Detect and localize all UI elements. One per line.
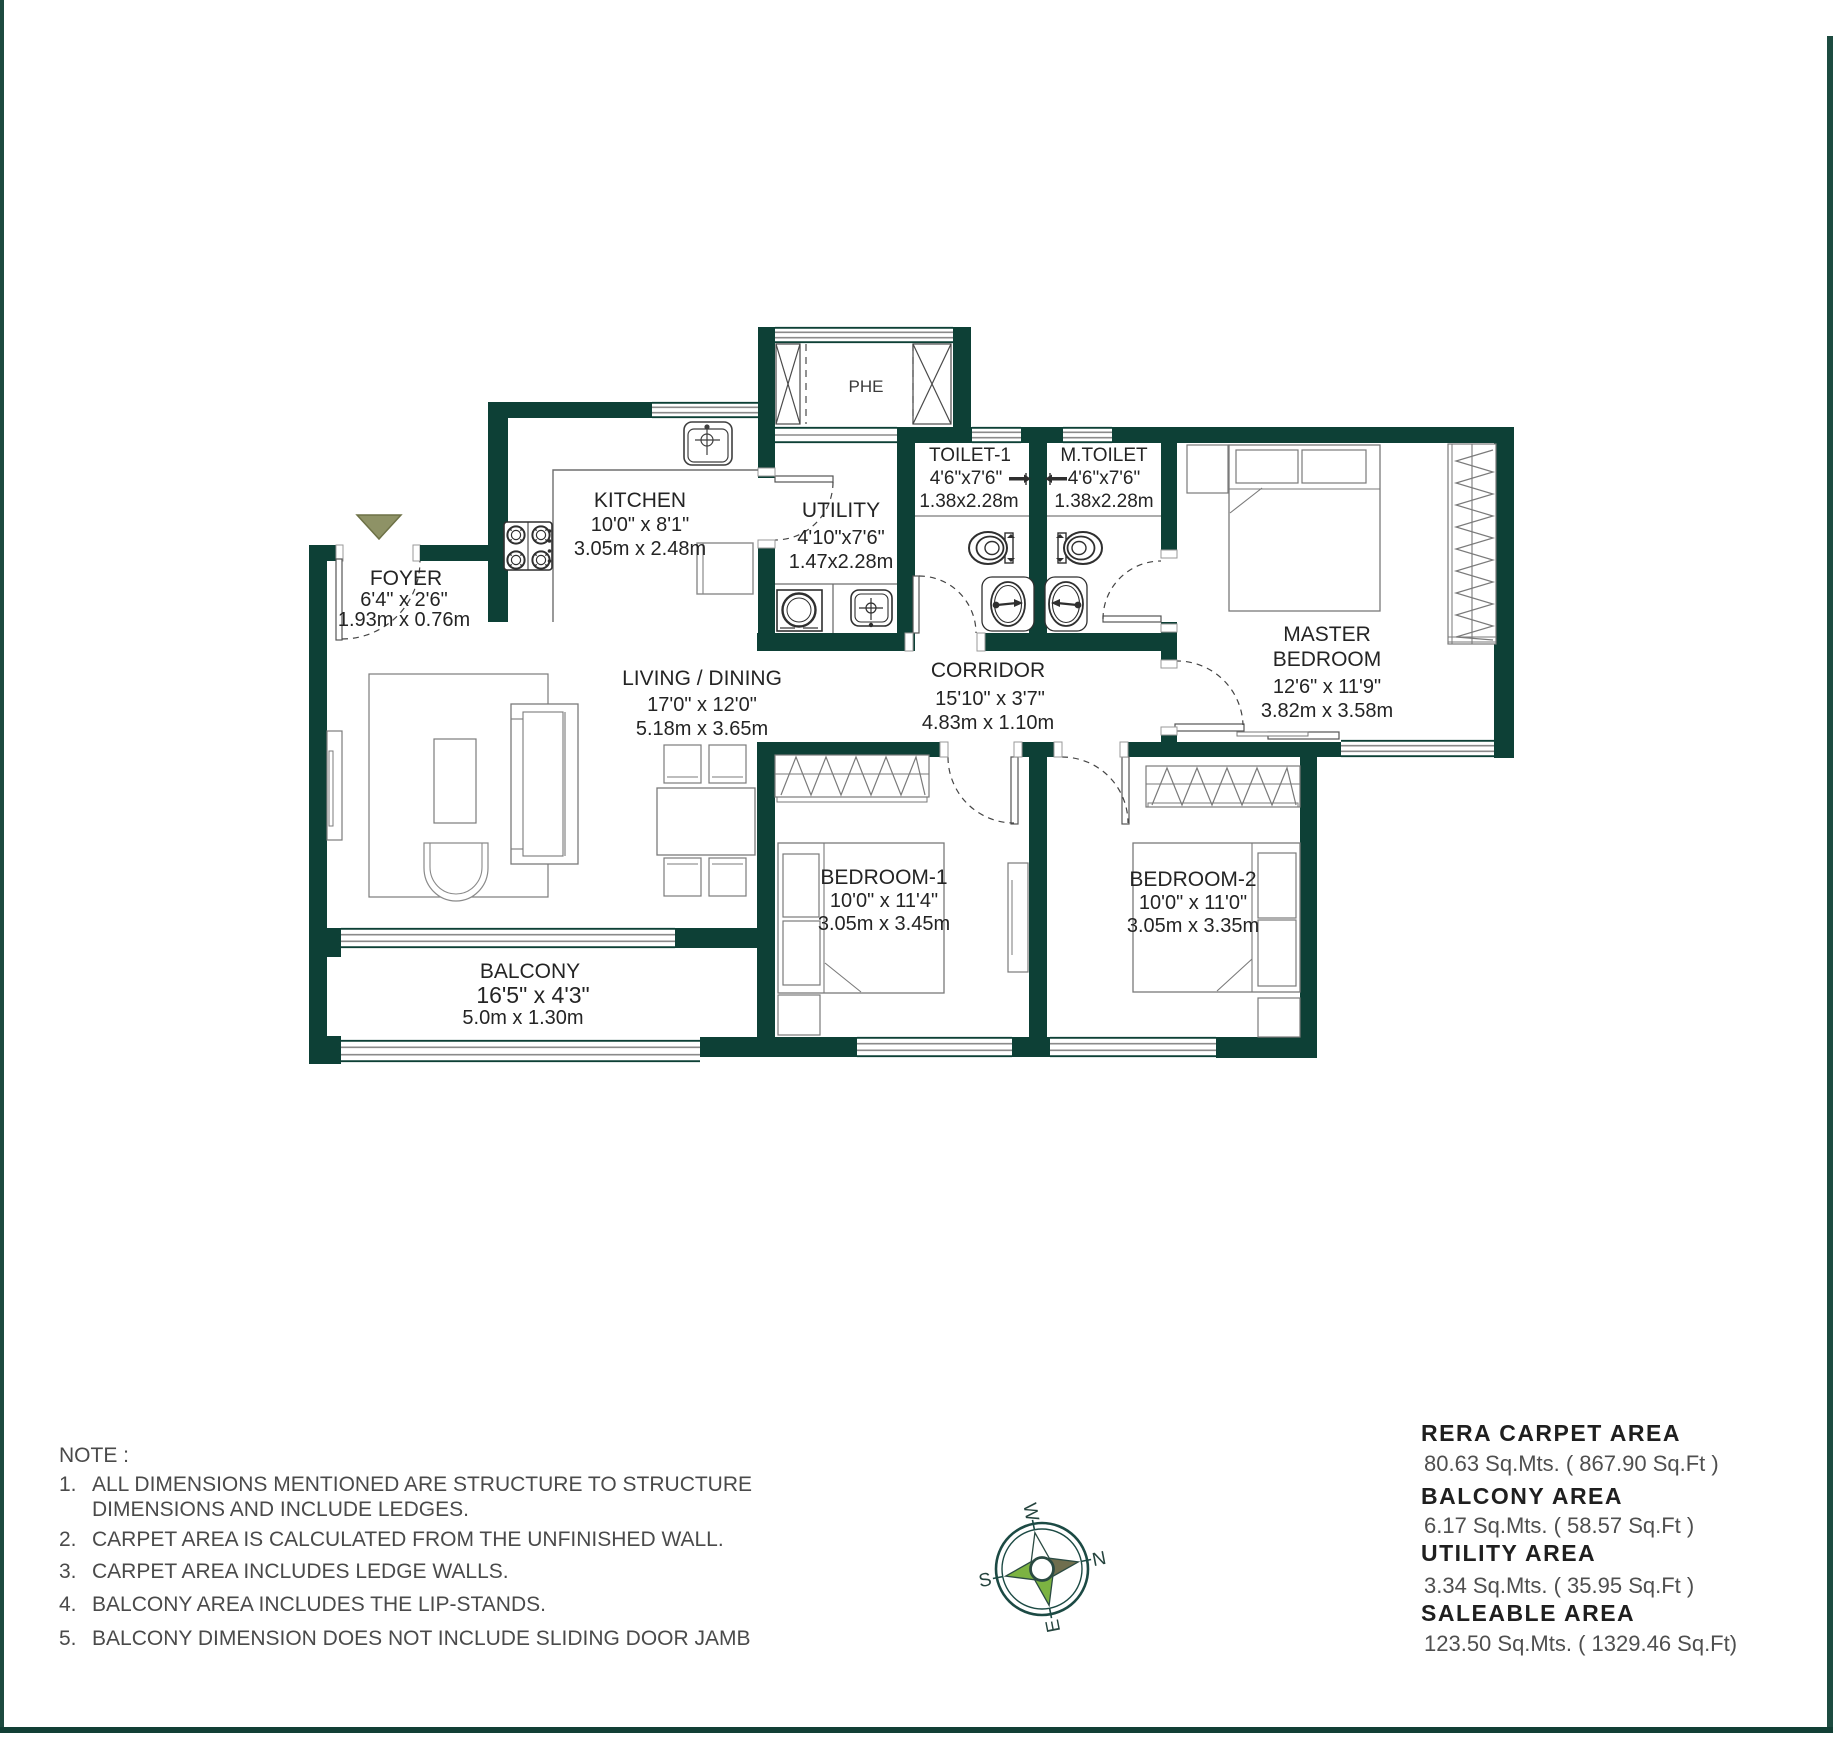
svg-text:BALCONY DIMENSION DOES NOT INC: BALCONY DIMENSION DOES NOT INCLUDE SLIDI… — [92, 1627, 751, 1650]
svg-text:1.: 1. — [59, 1473, 77, 1496]
svg-text:4'6"x7'6": 4'6"x7'6" — [1068, 468, 1141, 489]
svg-text:BEDROOM-2: BEDROOM-2 — [1129, 868, 1256, 891]
svg-text:ALL DIMENSIONS MENTIONED ARE S: ALL DIMENSIONS MENTIONED ARE STRUCTURE T… — [92, 1473, 752, 1496]
svg-text:80.63 Sq.Mts. ( 867.90 Sq.Ft ): 80.63 Sq.Mts. ( 867.90 Sq.Ft ) — [1424, 1451, 1719, 1476]
svg-text:DIMENSIONS AND INCLUDE LEDGES.: DIMENSIONS AND INCLUDE LEDGES. — [92, 1498, 469, 1521]
svg-text:1.93m x 0.76m: 1.93m x 0.76m — [338, 609, 470, 631]
svg-text:3.05m x 3.35m: 3.05m x 3.35m — [1127, 915, 1259, 937]
svg-text:FOYER: FOYER — [370, 567, 442, 590]
svg-text:BALCONY AREA: BALCONY AREA — [1421, 1483, 1623, 1509]
svg-text:CARPET AREA INCLUDES LEDGE WAL: CARPET AREA INCLUDES LEDGE WALLS. — [92, 1560, 509, 1583]
svg-text:TOILET-1: TOILET-1 — [929, 445, 1011, 466]
svg-text:4.: 4. — [59, 1593, 77, 1616]
svg-text:6'4" x 2'6": 6'4" x 2'6" — [360, 589, 447, 611]
svg-text:4'6"x7'6": 4'6"x7'6" — [930, 468, 1003, 489]
svg-text:BEDROOM: BEDROOM — [1273, 648, 1382, 671]
svg-text:UTILITY: UTILITY — [802, 499, 880, 522]
svg-text:10'0" x 11'4": 10'0" x 11'4" — [830, 890, 938, 912]
svg-text:16'5" x 4'3": 16'5" x 4'3" — [476, 982, 589, 1008]
svg-text:KITCHEN: KITCHEN — [594, 489, 686, 512]
svg-text:15'10" x 3'7": 15'10" x 3'7" — [935, 688, 1045, 710]
svg-text:3.82m x 3.58m: 3.82m x 3.58m — [1261, 700, 1393, 722]
svg-text:5.: 5. — [59, 1627, 77, 1650]
svg-text:10'0" x 8'1": 10'0" x 8'1" — [591, 514, 690, 536]
svg-text:5.0m x 1.30m: 5.0m x 1.30m — [462, 1007, 583, 1029]
svg-text:SALEABLE AREA: SALEABLE AREA — [1421, 1600, 1635, 1626]
svg-text:6.17 Sq.Mts. ( 58.57 Sq.Ft ): 6.17 Sq.Mts. ( 58.57 Sq.Ft ) — [1424, 1513, 1694, 1538]
svg-text:CORRIDOR: CORRIDOR — [931, 659, 1045, 682]
svg-text:3.05m x 2.48m: 3.05m x 2.48m — [574, 538, 706, 560]
svg-text:4.83m x 1.10m: 4.83m x 1.10m — [922, 712, 1054, 734]
svg-text:M.TOILET: M.TOILET — [1060, 445, 1148, 466]
svg-text:1.38x2.28m: 1.38x2.28m — [919, 491, 1018, 512]
svg-text:1.38x2.28m: 1.38x2.28m — [1054, 491, 1153, 512]
svg-text:CARPET AREA IS CALCULATED FROM: CARPET AREA IS CALCULATED FROM THE UNFIN… — [92, 1528, 724, 1551]
svg-text:5.18m x 3.65m: 5.18m x 3.65m — [636, 718, 768, 740]
svg-text:LIVING / DINING: LIVING / DINING — [622, 667, 782, 690]
svg-text:123.50 Sq.Mts. ( 1329.46 Sq.Ft: 123.50 Sq.Mts. ( 1329.46 Sq.Ft) — [1424, 1631, 1737, 1656]
svg-text:1.47x2.28m: 1.47x2.28m — [789, 551, 894, 573]
svg-text:10'0" x 11'0": 10'0" x 11'0" — [1139, 892, 1247, 914]
svg-text:BALCONY: BALCONY — [480, 960, 580, 983]
svg-text:NOTE :: NOTE : — [59, 1444, 129, 1467]
svg-text:2.: 2. — [59, 1528, 77, 1551]
svg-text:MASTER: MASTER — [1283, 623, 1371, 646]
svg-text:17'0" x 12'0": 17'0" x 12'0" — [647, 694, 757, 716]
svg-text:PHE: PHE — [849, 377, 884, 396]
svg-text:RERA CARPET AREA: RERA CARPET AREA — [1421, 1420, 1681, 1446]
svg-text:12'6" x 11'9": 12'6" x 11'9" — [1273, 676, 1381, 698]
svg-text:3.: 3. — [59, 1560, 77, 1583]
svg-text:3.34 Sq.Mts. ( 35.95 Sq.Ft ): 3.34 Sq.Mts. ( 35.95 Sq.Ft ) — [1424, 1573, 1694, 1598]
svg-text:BEDROOM-1: BEDROOM-1 — [820, 866, 947, 889]
svg-text:4'10"x7'6": 4'10"x7'6" — [797, 527, 884, 549]
svg-text:UTILITY AREA: UTILITY AREA — [1421, 1540, 1596, 1566]
svg-text:3.05m x 3.45m: 3.05m x 3.45m — [818, 913, 950, 935]
svg-text:BALCONY AREA INCLUDES THE LIP-: BALCONY AREA INCLUDES THE LIP-STANDS. — [92, 1593, 546, 1616]
